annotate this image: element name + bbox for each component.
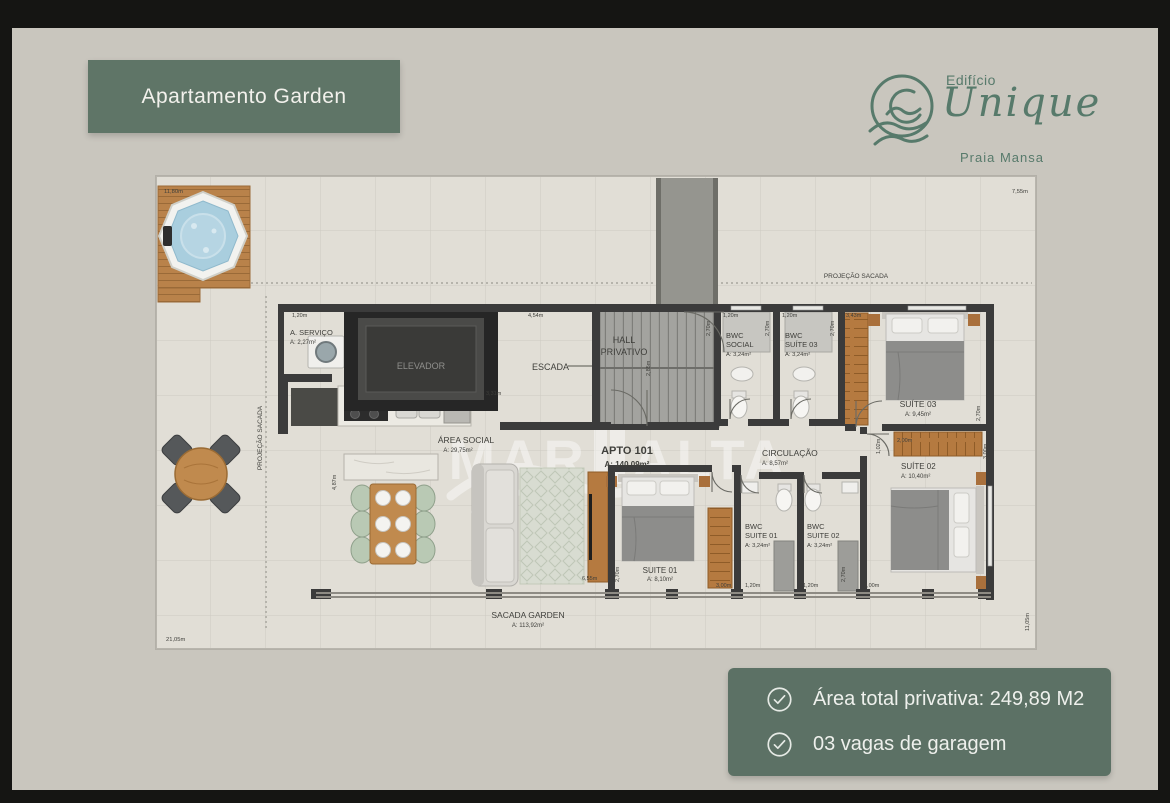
title-badge-label: Apartamento Garden — [141, 85, 346, 109]
room-area-sacada-garden: A: 113,92m² — [512, 623, 544, 629]
canvas: Apartamento Garden Edifício Unique Praia… — [12, 28, 1158, 790]
room-label-a-servico: A. SERVIÇO — [290, 328, 333, 337]
wave-circle-icon — [862, 68, 944, 168]
room-label-escada: ESCADA — [532, 362, 569, 372]
info-garage-label: 03 vagas de garagem — [813, 733, 1006, 756]
stair-core — [656, 178, 718, 307]
dim-2-70-c: 2,70m — [830, 320, 836, 336]
info-box: Área total privativa: 249,89 M2 03 vagas… — [728, 668, 1111, 776]
apto-number-label: APTO 101 — [601, 445, 653, 457]
info-row-garage: 03 vagas de garagem — [766, 731, 1111, 758]
island-counter — [344, 454, 438, 480]
dim-2-70-f: 2,70m — [976, 405, 982, 421]
dim-3-00-c: 3,00m — [864, 583, 880, 589]
room-label-bwc-suite02-2: SUITE 02 — [807, 531, 840, 540]
room-area-bwc-suite02: A: 3,24m² — [807, 543, 832, 549]
room-area-circulacao: A: 8,57m² — [762, 461, 788, 467]
room-label-bwc-suite02: BWC — [807, 522, 825, 531]
rug — [520, 468, 584, 584]
logo-name-text: Unique — [942, 80, 1132, 126]
dim-4-87: 4,87m — [332, 474, 338, 490]
room-area-suite01: A: 8,10m² — [647, 577, 673, 583]
room-label-circulacao: CIRCULAÇÃO — [762, 448, 818, 458]
projecao-sacada-left-label: PROJEÇÃO SACADA — [255, 405, 264, 470]
info-area-label: Área total privativa: 249,89 M2 — [813, 688, 1084, 711]
dim-2-70-e: 2,70m — [841, 566, 847, 582]
room-label-suite01: SUITE 01 — [643, 566, 678, 575]
check-circle-icon — [766, 731, 793, 758]
dim-21-05: 21,05m — [166, 637, 186, 643]
room-label-bwc-suite01-2: SUITE 01 — [745, 531, 778, 540]
room-area-suite02: A: 10,40m² — [901, 474, 930, 480]
dim-2-70-b: 2,70m — [765, 320, 771, 336]
dim-3-00-b: 3,00m — [716, 583, 732, 589]
room-label-bwc-suite01: BWC — [745, 522, 763, 531]
room-area-bwc-suite03: A: 3,24m² — [785, 352, 810, 358]
room-area-bwc-suite01: A: 3,24m² — [745, 543, 770, 549]
info-row-area: Área total privativa: 249,89 M2 — [766, 686, 1111, 713]
projecao-sacada-top-label: PROJEÇÃO SACADA — [824, 271, 889, 280]
floorplan-svg: MAR ALTA IMÓVEIS — [156, 176, 1036, 649]
apto-area-label: A: 140,09m² — [605, 460, 650, 469]
dim-1-02: 1,02m — [876, 438, 882, 454]
dim-2-85: 2,85m — [646, 360, 652, 376]
room-label-suite03: SUÍTE 03 — [900, 399, 937, 409]
dim-6-55: 6,55m — [582, 576, 598, 582]
room-label-bwc-social-2: SOCIAL — [726, 340, 754, 349]
room-area-suite03: A: 9,45m² — [905, 412, 931, 418]
room-area-a-servico: A: 2,27m² — [290, 340, 316, 346]
room-label-bwc-suite03-2: SUÍTE 03 — [785, 340, 818, 349]
dim-2-70-a: 2,70m — [706, 320, 712, 336]
bed-suite02 — [891, 432, 989, 589]
room-label-bwc-social: BWC — [726, 331, 744, 340]
dim-1-20-e: 1,20m — [803, 583, 819, 589]
dim-2-70-d: 2,70m — [615, 566, 621, 582]
room-label-elevador: ELEVADOR — [397, 361, 446, 371]
room-label-area-social: ÁREA SOCIAL — [438, 435, 494, 445]
dim-1-20-c: 1,20m — [782, 313, 798, 319]
dim-3-43: 3,43m — [846, 313, 862, 319]
hot-tub — [159, 192, 247, 280]
dim-1-20-d: 1,20m — [745, 583, 761, 589]
dim-7-55: 7,55m — [1012, 189, 1028, 195]
dining-table — [351, 484, 435, 564]
elevator — [344, 305, 498, 411]
dim-3-00-a: 3,00m — [983, 443, 989, 459]
tv-cabinet — [588, 472, 608, 582]
sofa — [472, 464, 518, 586]
room-label-hall-2: PRIVATIVO — [601, 347, 648, 357]
dim-1-20-a: 1,20m — [292, 313, 308, 319]
dim-4-54: 4,54m — [528, 313, 544, 319]
room-area-area-social: A: 29,75m² — [443, 448, 472, 454]
logo: Edifício Unique Praia Mansa — [850, 56, 1140, 184]
dim-11-80: 11,80m — [164, 189, 183, 195]
room-label-suite02: SUÍTE 02 — [901, 462, 936, 471]
check-circle-icon — [766, 686, 793, 713]
room-area-bwc-social: A: 3,24m² — [726, 352, 751, 358]
logo-place-text: Praia Mansa — [960, 150, 1044, 165]
dim-11-05: 11,05m — [1025, 613, 1031, 631]
dim-3-31: 3,31m — [486, 391, 502, 397]
room-label-sacada-garden: SACADA GARDEN — [491, 610, 564, 620]
room-label-hall: HALL — [613, 335, 636, 345]
dim-2-00: 2,00m — [897, 438, 913, 444]
room-label-bwc-suite03: BWC — [785, 331, 803, 340]
floorplan: MAR ALTA IMÓVEIS — [155, 175, 1037, 650]
title-badge: Apartamento Garden — [88, 60, 400, 133]
dim-1-20-b: 1,20m — [723, 313, 739, 319]
